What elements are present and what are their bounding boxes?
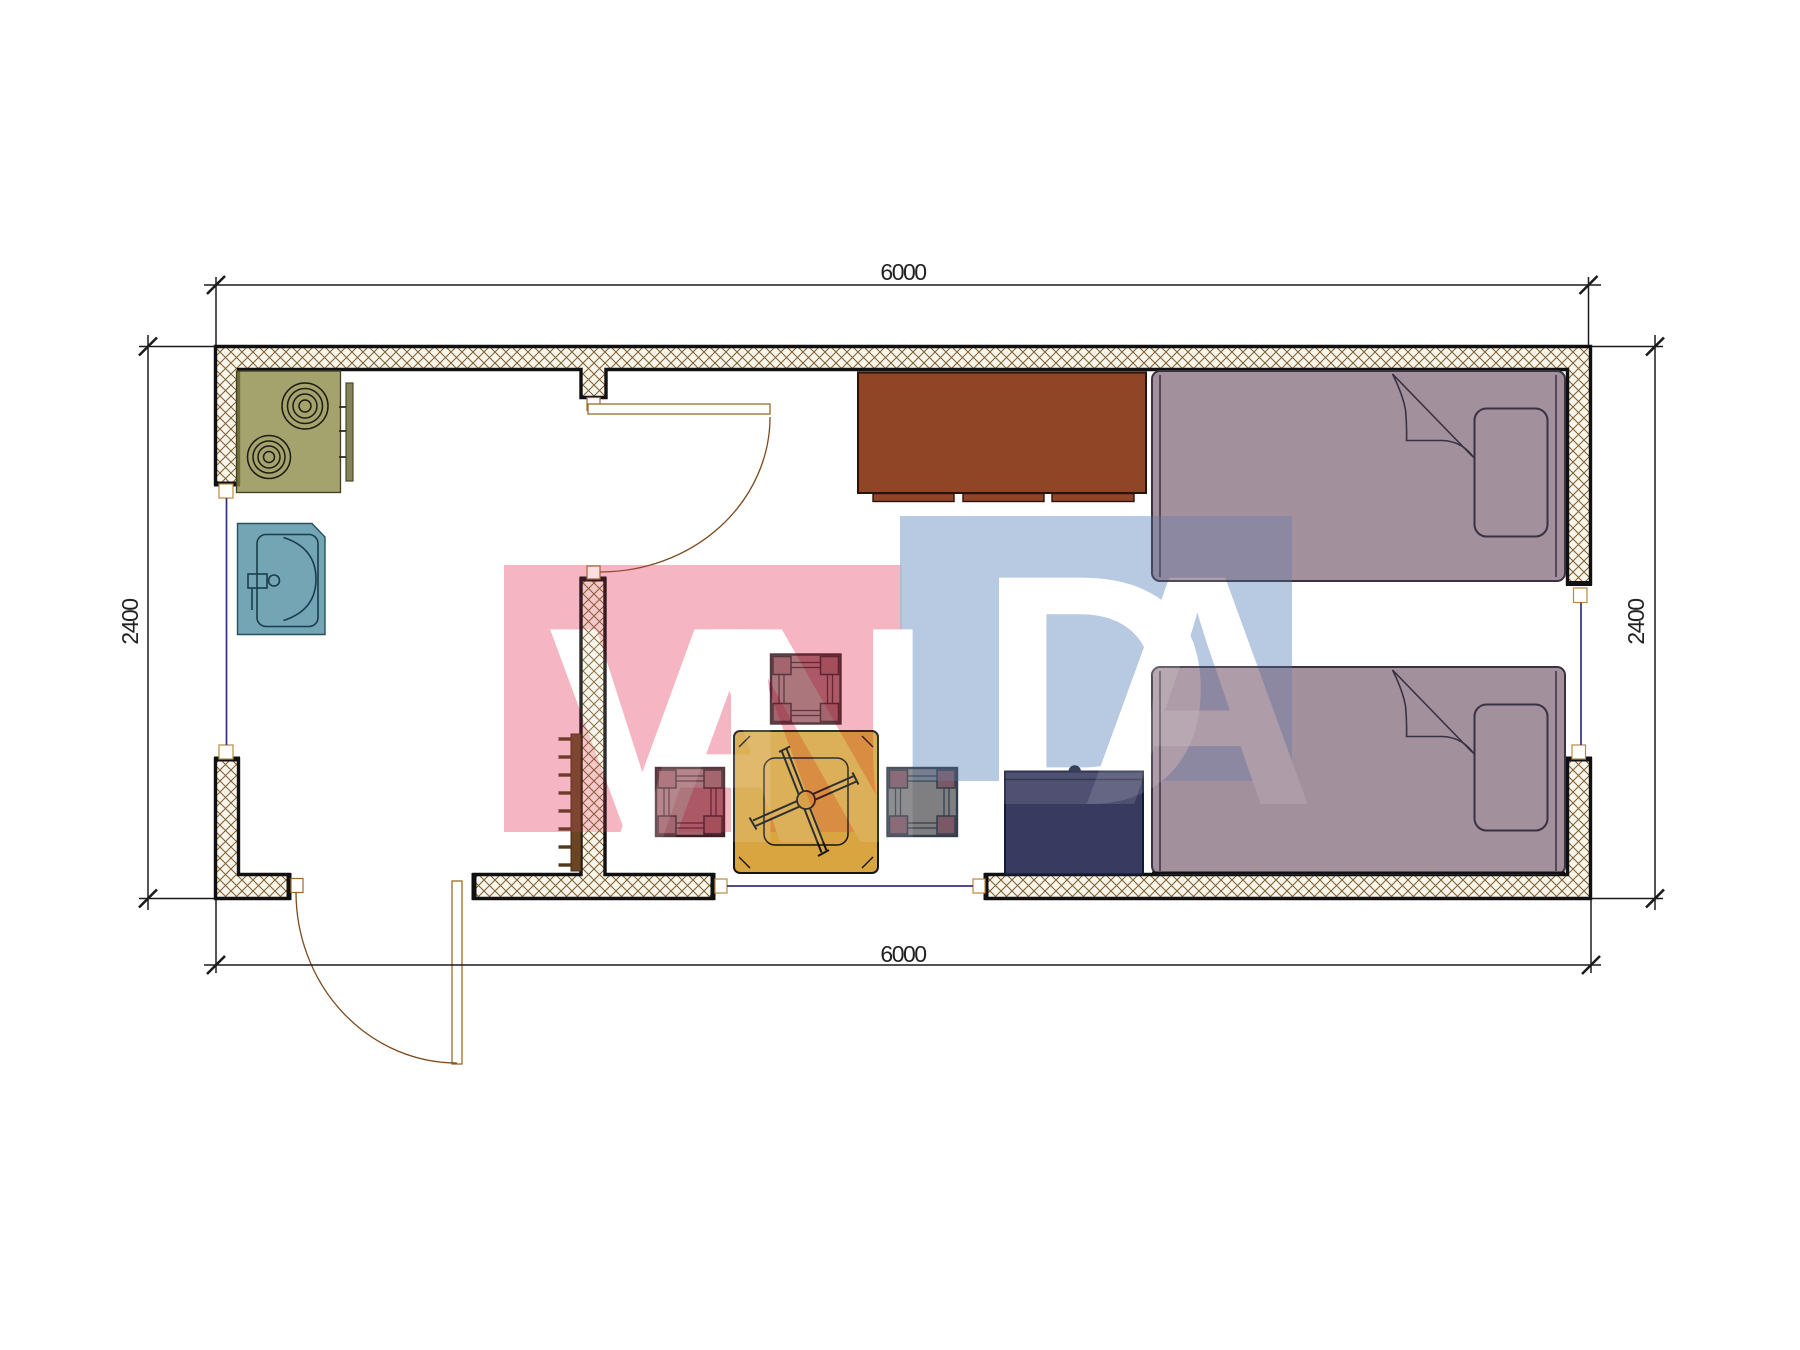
svg-text:2400: 2400 [1623,599,1649,645]
svg-text:6000: 6000 [880,259,926,285]
svg-text:2400: 2400 [117,599,143,645]
svg-text:6000: 6000 [880,941,926,967]
